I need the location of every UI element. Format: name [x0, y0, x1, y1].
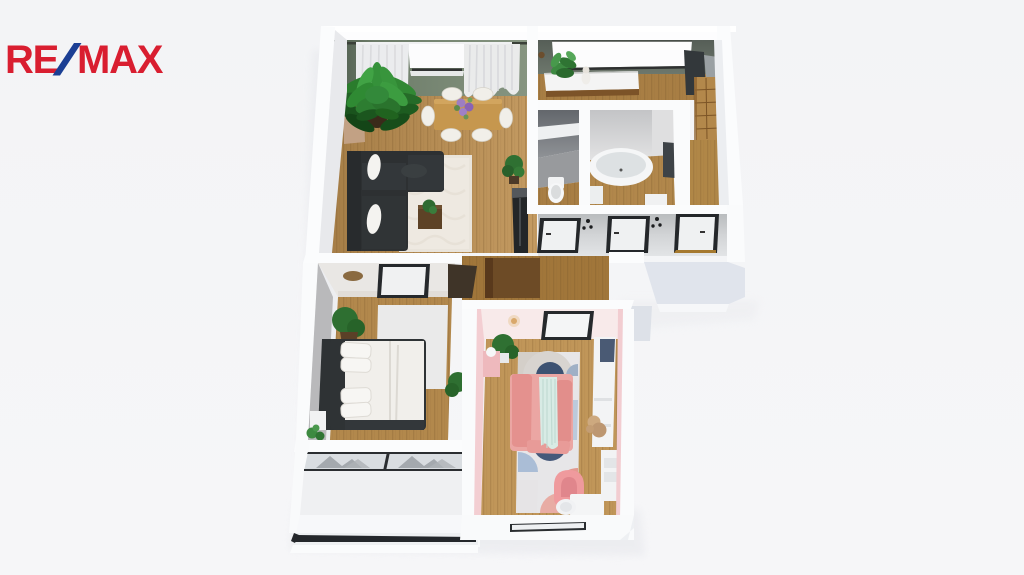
svg-text:RE: RE: [5, 38, 59, 82]
svg-text:MAX: MAX: [77, 38, 164, 82]
